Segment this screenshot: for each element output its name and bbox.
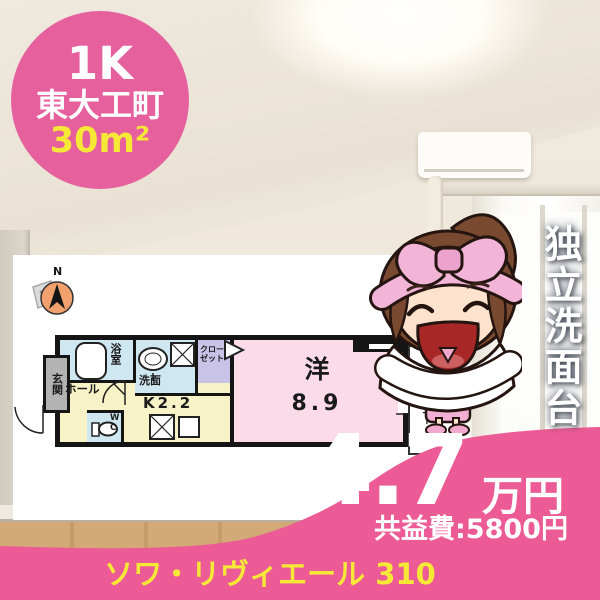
building-name: ソワ・リヴィエール 310 — [90, 551, 450, 593]
western-room-label: 洋 — [296, 350, 338, 386]
sink-icon — [139, 348, 167, 370]
bow-knot — [436, 248, 462, 272]
air-conditioner — [418, 132, 531, 178]
bathtub-icon — [76, 343, 106, 379]
common-fee: 共益費:5800円 — [374, 507, 568, 546]
kitchen-label: K2.2 — [143, 394, 193, 412]
washroom-label: 洗面 — [139, 372, 161, 388]
curtain-rail — [438, 184, 600, 196]
feature-text: 独立洗面台 — [541, 224, 579, 429]
toilet-tank — [92, 423, 99, 436]
hall-label: ホール — [65, 381, 100, 397]
kitchen-sink-icon — [179, 417, 199, 437]
window-mullion — [582, 205, 587, 550]
entrance-door-arc — [15, 407, 43, 433]
rent-amount: 4.7 — [306, 422, 466, 519]
western-room-size: 8.9 — [285, 391, 349, 416]
closet-label: クローゼット — [200, 346, 228, 364]
toilet-label: WC — [110, 414, 120, 433]
badge-layout-type: 1K — [67, 40, 133, 89]
property-badge: 1K 東大工町 30m² — [11, 11, 189, 189]
badge-area: 30m² — [50, 123, 151, 161]
badge-location: 東大工町 — [36, 88, 164, 123]
listing-card: N 玄関 バルコニー — [0, 0, 600, 600]
ac-vent — [424, 169, 524, 172]
mascot-character — [352, 198, 522, 436]
bathroom-label: 浴室 — [107, 343, 123, 365]
